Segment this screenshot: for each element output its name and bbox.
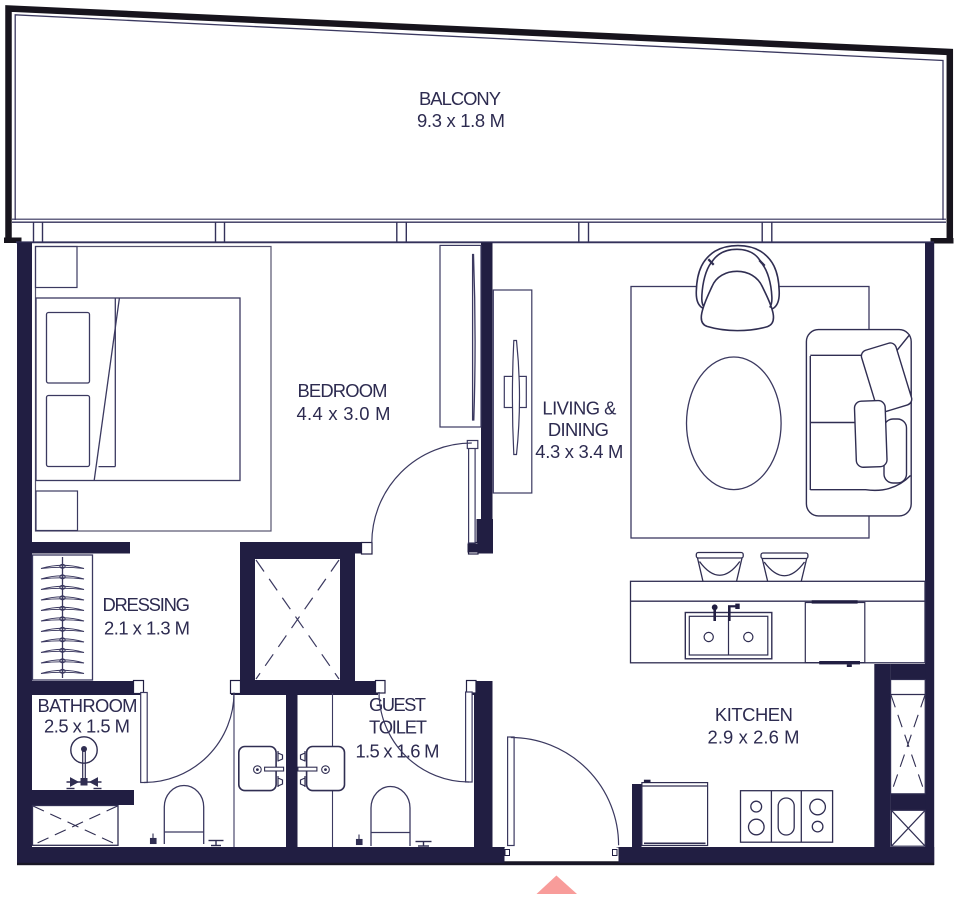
svg-text:GUEST: GUEST (369, 694, 426, 715)
svg-text:TOILET: TOILET (369, 717, 427, 738)
svg-text:2.5 x 1.5 M: 2.5 x 1.5 M (44, 716, 130, 737)
svg-text:DINING: DINING (548, 419, 609, 440)
svg-text:BATHROOM: BATHROOM (38, 695, 138, 716)
svg-text:BALCONY: BALCONY (419, 88, 501, 109)
svg-text:1.5 x 1.6 M: 1.5 x 1.6 M (356, 741, 440, 762)
svg-text:9.3 x 1.8 M: 9.3 x 1.8 M (417, 110, 505, 131)
svg-text:2.1 x 1.3 M: 2.1 x 1.3 M (104, 618, 190, 639)
svg-text:LIVING &: LIVING & (542, 398, 616, 419)
svg-text:2.9 x 2.6 M: 2.9 x 2.6 M (708, 727, 800, 748)
svg-text:4.4 x 3.0 M: 4.4 x 3.0 M (297, 403, 391, 424)
svg-text:4.3 x 3.4 M: 4.3 x 3.4 M (535, 441, 623, 462)
svg-text:BEDROOM: BEDROOM (298, 380, 388, 401)
svg-text:KITCHEN: KITCHEN (715, 704, 793, 725)
svg-text:DRESSING: DRESSING (102, 594, 190, 615)
